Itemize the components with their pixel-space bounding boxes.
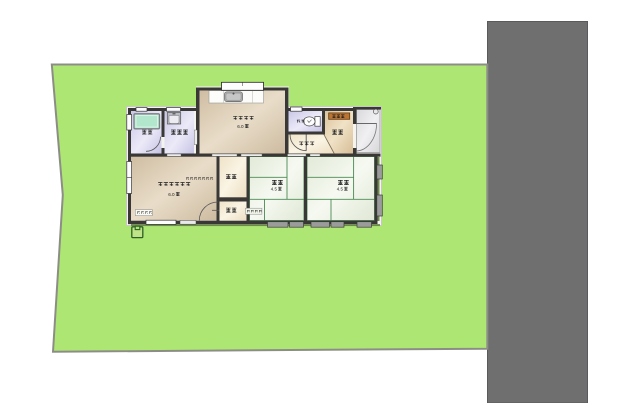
svg-text:4.5: 4.5 [271, 186, 278, 191]
svg-text:6.0: 6.0 [237, 124, 244, 129]
svg-text:6.0: 6.0 [168, 192, 175, 197]
svg-text:4.5: 4.5 [337, 186, 344, 191]
